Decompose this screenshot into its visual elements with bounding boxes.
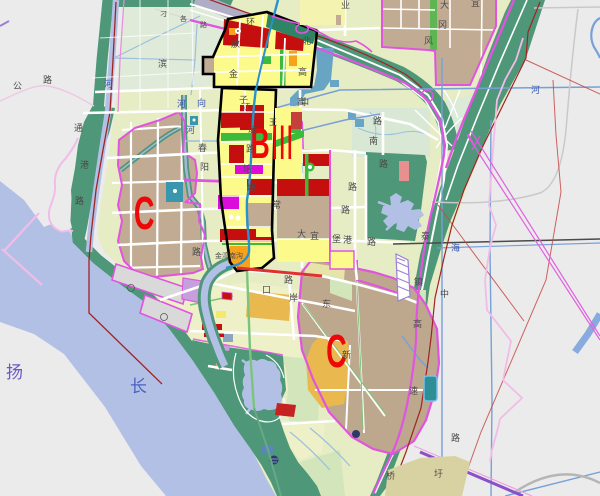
svg-text:河: 河 (177, 98, 186, 109)
svg-text:圩: 圩 (434, 468, 443, 479)
svg-text:河: 河 (531, 84, 540, 95)
svg-text:宜: 宜 (471, 0, 480, 8)
svg-text:宜: 宜 (310, 230, 319, 241)
svg-text:路: 路 (192, 246, 201, 257)
svg-text:高: 高 (413, 318, 422, 329)
svg-text:王: 王 (269, 118, 277, 127)
svg-text:长: 长 (130, 377, 147, 396)
svg-text:路: 路 (43, 74, 52, 85)
svg-text:镇: 镇 (414, 276, 423, 287)
svg-text:常: 常 (272, 199, 281, 210)
svg-text:埔: 埔 (247, 182, 256, 193)
svg-text:速: 速 (409, 386, 418, 396)
svg-text:江: 江 (242, 102, 251, 112)
svg-text:路: 路 (200, 20, 207, 29)
svg-text:高: 高 (297, 96, 306, 107)
svg-text:风: 风 (424, 36, 433, 46)
svg-text:高: 高 (298, 66, 307, 77)
svg-text:北: 北 (302, 36, 311, 46)
svg-text:路: 路 (348, 181, 357, 192)
svg-text:冈: 冈 (438, 20, 447, 30)
svg-text:东: 东 (322, 298, 331, 309)
svg-text:金: 金 (229, 68, 238, 79)
svg-text:路: 路 (75, 195, 84, 206)
svg-text:C: C (134, 188, 155, 240)
svg-text:域: 域 (248, 124, 257, 135)
svg-text:河: 河 (186, 124, 195, 135)
svg-text:港: 港 (80, 159, 89, 170)
svg-text:口: 口 (262, 285, 271, 295)
svg-text:扬: 扬 (6, 363, 23, 382)
svg-text:南: 南 (369, 135, 378, 146)
svg-text:桥: 桥 (386, 470, 395, 481)
svg-text:放: 放 (231, 38, 240, 49)
svg-text:路: 路 (379, 158, 388, 169)
svg-text:公: 公 (13, 81, 22, 91)
svg-text:业: 业 (341, 0, 350, 10)
svg-text:堡: 堡 (332, 233, 341, 244)
svg-text:培: 培 (243, 163, 252, 174)
svg-text:通: 通 (74, 123, 83, 133)
svg-text:海: 海 (451, 242, 460, 253)
svg-text:中: 中 (440, 288, 449, 299)
svg-text:刁: 刁 (160, 10, 167, 18)
svg-text:路: 路 (341, 204, 350, 215)
svg-text:路: 路 (373, 115, 382, 126)
svg-text:各: 各 (180, 14, 187, 23)
svg-text:大: 大 (440, 0, 449, 10)
svg-text:大: 大 (297, 228, 306, 239)
svg-text:路: 路 (367, 236, 376, 247)
svg-text:环: 环 (246, 17, 255, 27)
svg-text:路: 路 (284, 274, 293, 285)
svg-text:滨: 滨 (158, 58, 167, 69)
svg-text:泰: 泰 (421, 230, 430, 241)
svg-text:路: 路 (451, 432, 460, 443)
svg-text:河: 河 (104, 78, 113, 89)
svg-text:阳: 阳 (200, 162, 209, 172)
svg-text:金湾南沟: 金湾南沟 (215, 251, 243, 260)
svg-text:路: 路 (246, 143, 255, 154)
svg-text:新: 新 (342, 349, 351, 360)
svg-text:春: 春 (198, 142, 207, 153)
svg-text:岸: 岸 (289, 293, 298, 303)
svg-text:港: 港 (343, 234, 352, 245)
svg-text:向: 向 (197, 97, 206, 108)
